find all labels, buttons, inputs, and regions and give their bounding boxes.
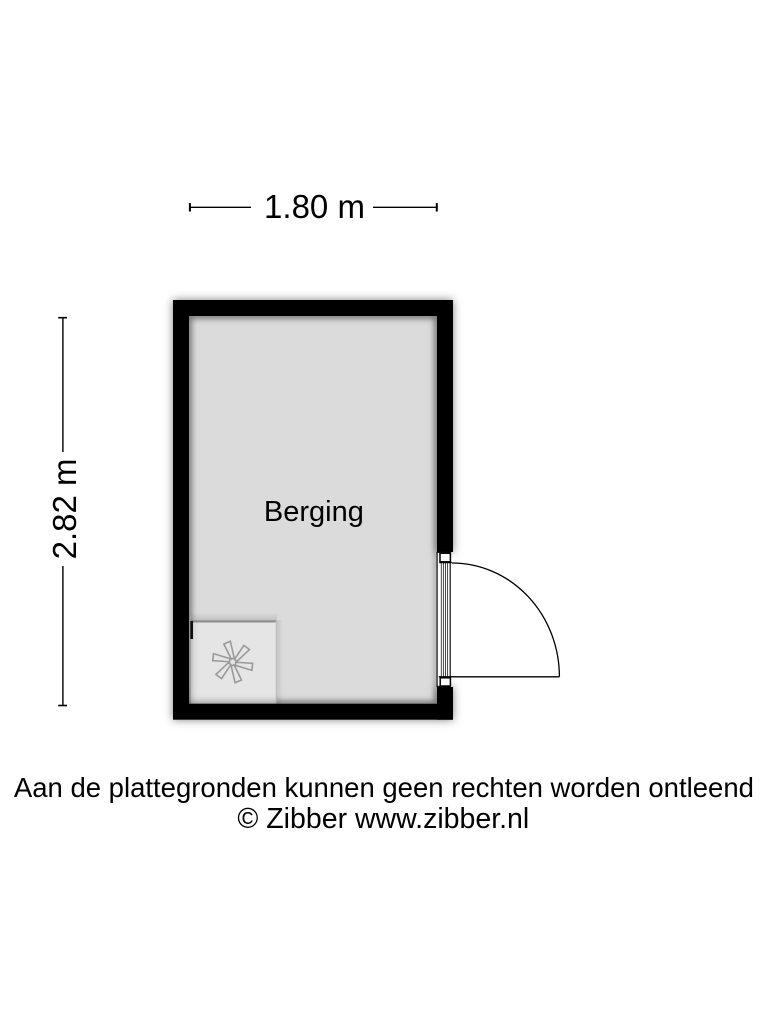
svg-text:Berging: Berging (264, 496, 364, 528)
svg-text:2.82 m: 2.82 m (46, 458, 83, 559)
svg-text:Aan de plattegronden kunnen ge: Aan de plattegronden kunnen geen rechten… (14, 772, 754, 803)
svg-text:1.80 m: 1.80 m (264, 188, 365, 225)
svg-text:© Zibber www.zibber.nl: © Zibber www.zibber.nl (237, 803, 529, 835)
